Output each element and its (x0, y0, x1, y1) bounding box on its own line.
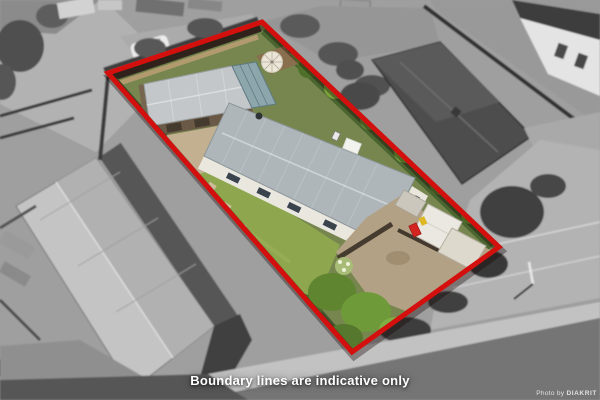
aerial-photo: Boundary lines are indicative only Photo… (0, 0, 600, 400)
flower-bush (335, 257, 353, 275)
patio-umbrella (262, 52, 283, 73)
satellite-dish (256, 113, 263, 120)
property-aerial-svg (0, 0, 600, 400)
